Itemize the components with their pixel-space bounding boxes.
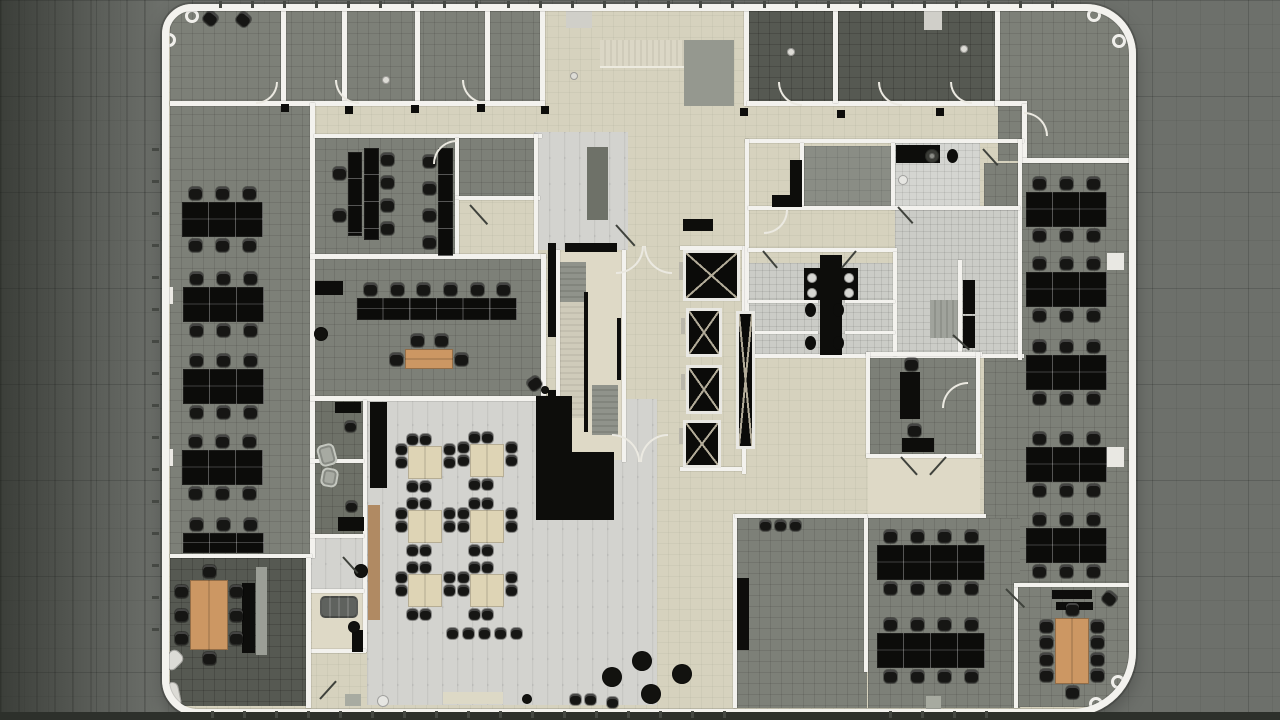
stairwell-flight-bottom (592, 385, 618, 435)
chair (1091, 620, 1104, 633)
desk-small (338, 517, 364, 531)
elevator-door (681, 374, 685, 390)
door-swing-arc (616, 246, 644, 274)
door-swing-arc (644, 246, 672, 274)
chair (230, 632, 243, 645)
chair (407, 609, 418, 620)
wall (541, 254, 546, 400)
wall (866, 352, 870, 458)
cafe-table-top (408, 574, 442, 607)
toilet (805, 303, 816, 317)
hinge-dot (960, 45, 968, 53)
column (566, 8, 592, 28)
chair (396, 572, 407, 583)
desk (183, 369, 264, 404)
chair (175, 609, 188, 622)
chair (217, 324, 230, 337)
desk-cluster-left-2 (183, 271, 264, 340)
elevator-sign (683, 219, 713, 231)
chair (1040, 653, 1053, 666)
wall (864, 514, 986, 518)
chair (1087, 484, 1100, 497)
chair (244, 518, 257, 531)
meeting-table-bottom-left (174, 564, 244, 666)
desk-cluster-br-2 (877, 617, 985, 686)
chair (216, 239, 229, 252)
reception-rug (587, 147, 608, 220)
chair (1033, 340, 1046, 353)
toilet (805, 336, 816, 350)
chair (420, 545, 431, 556)
desk (183, 533, 264, 553)
chair (1060, 229, 1073, 242)
door-leaf-line (319, 680, 337, 699)
stool (348, 621, 360, 633)
chair (244, 406, 257, 419)
sink (844, 288, 854, 298)
chair (396, 521, 407, 532)
chair (938, 670, 951, 683)
chair (469, 479, 480, 490)
chair (884, 670, 897, 683)
chair (420, 481, 431, 492)
door-leaf-line (469, 204, 488, 225)
chair (1040, 669, 1053, 682)
planter (345, 694, 361, 706)
desk-cluster-left-5 (183, 517, 264, 571)
chair (506, 442, 517, 453)
chair (1033, 392, 1046, 405)
stair-rail (617, 318, 621, 380)
chair (965, 582, 978, 595)
chair (1033, 309, 1046, 322)
chair (333, 209, 346, 222)
cafe-table-top (470, 574, 504, 607)
column-ring (1089, 697, 1103, 711)
wall (310, 396, 548, 401)
chair (458, 585, 469, 596)
wall-marker (936, 108, 944, 116)
desk-cluster-right-5 (1026, 512, 1107, 581)
chair (1040, 620, 1053, 633)
window-ticks-top (190, 1, 1070, 8)
chair (333, 167, 346, 180)
bench (963, 280, 975, 314)
chair (790, 520, 801, 531)
wall (744, 11, 749, 106)
chair (458, 572, 469, 583)
chair (381, 222, 394, 235)
cafeteria-table (457, 497, 517, 556)
training-room (737, 518, 867, 708)
chair (775, 520, 786, 531)
chair (1087, 513, 1100, 526)
chair (217, 406, 230, 419)
chair (1066, 686, 1079, 699)
wall (534, 134, 538, 254)
chair (1060, 432, 1073, 445)
chair (411, 334, 424, 347)
cabinet (315, 281, 343, 295)
chair (1040, 636, 1053, 649)
building-interior (0, 0, 1280, 720)
chair-dot (541, 386, 549, 394)
chair (444, 457, 455, 468)
wall-marker (477, 104, 485, 112)
chair (190, 354, 203, 367)
credenza (902, 438, 934, 452)
chair (346, 501, 357, 512)
chair (585, 694, 596, 705)
cabinet-gray (256, 567, 267, 655)
chair (938, 618, 951, 631)
chair (458, 521, 469, 532)
cafeteria-table (395, 561, 455, 620)
reception-counter (370, 402, 387, 488)
chair (364, 283, 377, 296)
toilet (947, 149, 958, 163)
wall (310, 589, 364, 593)
wall (745, 139, 1024, 143)
chair (1033, 432, 1046, 445)
chair (381, 153, 394, 166)
chair (506, 521, 517, 532)
desk-cluster-right-4 (1026, 431, 1107, 500)
desk-cluster-br-1 (877, 529, 985, 598)
column-ring (185, 9, 199, 23)
chair (482, 479, 493, 490)
chair (1091, 669, 1104, 682)
vertical-desk-3 (422, 148, 469, 256)
wall-marker (345, 106, 353, 114)
column-ring (1111, 675, 1125, 689)
chair (482, 545, 493, 556)
desk (1026, 192, 1107, 227)
chair (244, 324, 257, 337)
pale-strip (443, 692, 503, 704)
wall-marker (740, 108, 748, 116)
chair (175, 632, 188, 645)
chair (884, 530, 897, 543)
desk-single (900, 372, 920, 419)
chair (345, 421, 356, 432)
training-screen-wall (737, 578, 749, 650)
wall-box (161, 449, 173, 466)
chair (407, 498, 418, 509)
chair (884, 582, 897, 595)
desk (877, 545, 985, 580)
wall (540, 11, 545, 106)
chair (396, 585, 407, 596)
chair (417, 283, 430, 296)
wall (314, 134, 542, 138)
desk (877, 633, 985, 668)
wall (893, 252, 897, 356)
chair (965, 618, 978, 631)
desk (1026, 272, 1107, 307)
stair-landing (684, 40, 734, 106)
chair (506, 585, 517, 596)
chair (390, 353, 403, 366)
chair (216, 187, 229, 200)
service-shaft (736, 311, 755, 449)
chair (458, 442, 469, 453)
window-ticks-bottom (182, 711, 738, 718)
cafe-table-top (470, 444, 504, 477)
chair (444, 444, 455, 455)
chair (230, 609, 243, 622)
desk (183, 287, 264, 322)
chair (506, 455, 517, 466)
cafe-table-top (470, 510, 504, 543)
chair (908, 424, 921, 437)
pouf (641, 684, 661, 704)
sink (807, 288, 817, 298)
chair (469, 609, 480, 620)
chair (463, 628, 474, 639)
chair (1033, 565, 1046, 578)
chair (190, 518, 203, 531)
chair (396, 457, 407, 468)
chair (469, 545, 480, 556)
surroundings-shadow-left (0, 0, 162, 720)
chair (1060, 257, 1073, 270)
pouf (632, 651, 652, 671)
chair (190, 272, 203, 285)
wall (995, 11, 1000, 106)
floor-dot (377, 695, 389, 707)
chair (1060, 177, 1073, 190)
toilet (833, 336, 844, 350)
chair (216, 487, 229, 500)
chair (190, 406, 203, 419)
wall (845, 300, 895, 303)
desk-cluster-right-1 (1026, 176, 1107, 245)
column (924, 10, 942, 30)
desk-cluster-left-3 (183, 353, 264, 422)
wall (976, 352, 980, 458)
column-ring (162, 33, 176, 47)
chair (175, 585, 188, 598)
wall (1022, 158, 1130, 163)
chair (1033, 257, 1046, 270)
chair (217, 272, 230, 285)
wall (310, 534, 364, 538)
chair (420, 498, 431, 509)
wall (415, 11, 420, 103)
wall-box (1107, 447, 1124, 467)
wall (891, 143, 895, 210)
chair (1087, 565, 1100, 578)
chair (203, 652, 216, 665)
chair (189, 487, 202, 500)
chair (381, 199, 394, 212)
chair (1087, 432, 1100, 445)
wall (281, 11, 286, 103)
desk-cluster-left-1 (182, 186, 263, 255)
small-room-a (459, 138, 538, 198)
chair (407, 545, 418, 556)
sink (844, 273, 854, 283)
stair-rail (584, 292, 588, 432)
accent-wall (548, 243, 556, 337)
round-sink (898, 175, 908, 185)
room-beige-diagonal-doors (868, 456, 980, 516)
chair (482, 609, 493, 620)
wall (845, 331, 895, 334)
chair (469, 562, 480, 573)
chair (189, 239, 202, 252)
chair (243, 487, 256, 500)
chair (469, 498, 480, 509)
wall (748, 248, 897, 252)
chair (189, 187, 202, 200)
chair (1087, 257, 1100, 270)
wall (866, 352, 982, 356)
chair (447, 628, 458, 639)
chair (243, 187, 256, 200)
chair (1091, 636, 1104, 649)
hinge-dot (787, 48, 795, 56)
chair (497, 283, 510, 296)
cafeteria-table (395, 497, 455, 556)
open-stair-upper (600, 40, 684, 68)
wall-marker (837, 110, 845, 118)
chair (420, 562, 431, 573)
desk-cluster-right-2 (1026, 256, 1107, 325)
bench (963, 316, 975, 348)
chair (1060, 309, 1073, 322)
chair (1033, 484, 1046, 497)
chair (570, 694, 581, 705)
cafe-table-top (408, 446, 442, 479)
gray-room-bath-block (804, 146, 893, 207)
pouf (602, 667, 622, 687)
chair (381, 176, 394, 189)
window-ticks-bottom (860, 711, 1008, 718)
chair (1087, 392, 1100, 405)
chair (1087, 177, 1100, 190)
chair (1087, 229, 1100, 242)
chair (407, 481, 418, 492)
chair (420, 609, 431, 620)
chair (482, 432, 493, 443)
elevator-4 (683, 420, 721, 468)
chair (1033, 229, 1046, 242)
cafe-table-top (408, 510, 442, 543)
lounge-couch (320, 596, 358, 618)
credenza (1052, 590, 1092, 599)
stool (314, 327, 328, 341)
wall (735, 514, 867, 518)
elevator-door (679, 262, 683, 280)
stool (522, 694, 532, 704)
chair (471, 283, 484, 296)
wall-marker (281, 104, 289, 112)
wall-box (1107, 253, 1124, 270)
chair (506, 508, 517, 519)
wall (1018, 139, 1022, 360)
chair (1033, 177, 1046, 190)
desk-cluster-right-3 (1026, 339, 1107, 408)
elevator-door (679, 428, 683, 444)
chair (217, 518, 230, 531)
chair (396, 508, 407, 519)
chair (965, 530, 978, 543)
chair (444, 508, 455, 519)
chair (420, 434, 431, 445)
shower-mat (930, 300, 960, 338)
chair (469, 432, 480, 443)
chair (482, 498, 493, 509)
chair (905, 358, 918, 371)
wall-marker (411, 105, 419, 113)
floorplan-screenshot (0, 0, 1280, 720)
chair (511, 628, 522, 639)
elevator-2 (686, 308, 722, 357)
cafeteria-table (395, 433, 455, 492)
chair (760, 520, 771, 531)
wall-marker (541, 106, 549, 114)
planter (926, 696, 941, 710)
chair (444, 585, 455, 596)
wood-table (190, 580, 228, 650)
chair (911, 618, 924, 631)
door-swing-arc (764, 210, 788, 234)
chair (407, 562, 418, 573)
wall (747, 101, 999, 106)
chair (458, 508, 469, 519)
media-wall-stair (565, 243, 617, 252)
chair (506, 572, 517, 583)
chair (189, 435, 202, 448)
pouf (672, 664, 692, 684)
chair (479, 628, 490, 639)
stairwell-flight-top (559, 262, 586, 302)
column-ring (1087, 8, 1101, 22)
chair (423, 209, 436, 222)
elevator-door (681, 318, 685, 334)
chair (1060, 513, 1073, 526)
chair (190, 324, 203, 337)
chair (911, 582, 924, 595)
chair (1033, 513, 1046, 526)
cafeteria-table (457, 431, 517, 490)
chair (1066, 603, 1079, 616)
window-ticks-left (152, 120, 159, 660)
desk-cluster-left-4 (182, 434, 263, 503)
counter-l (772, 195, 802, 207)
desk (357, 298, 517, 320)
chair (1087, 309, 1100, 322)
meeting-table-bottom-right (1039, 602, 1105, 700)
chair (1060, 484, 1073, 497)
toilet (833, 303, 844, 317)
wall (1014, 583, 1130, 587)
chair (216, 435, 229, 448)
chair (884, 618, 897, 631)
chair (1060, 340, 1073, 353)
chair (423, 182, 436, 195)
cafeteria-table (457, 561, 517, 620)
column-ring (1112, 34, 1126, 48)
hinge-dot (570, 72, 578, 80)
reception-hex (534, 132, 628, 250)
sink (807, 273, 817, 283)
chair (495, 628, 506, 639)
wall (306, 558, 311, 708)
desk (182, 450, 263, 485)
